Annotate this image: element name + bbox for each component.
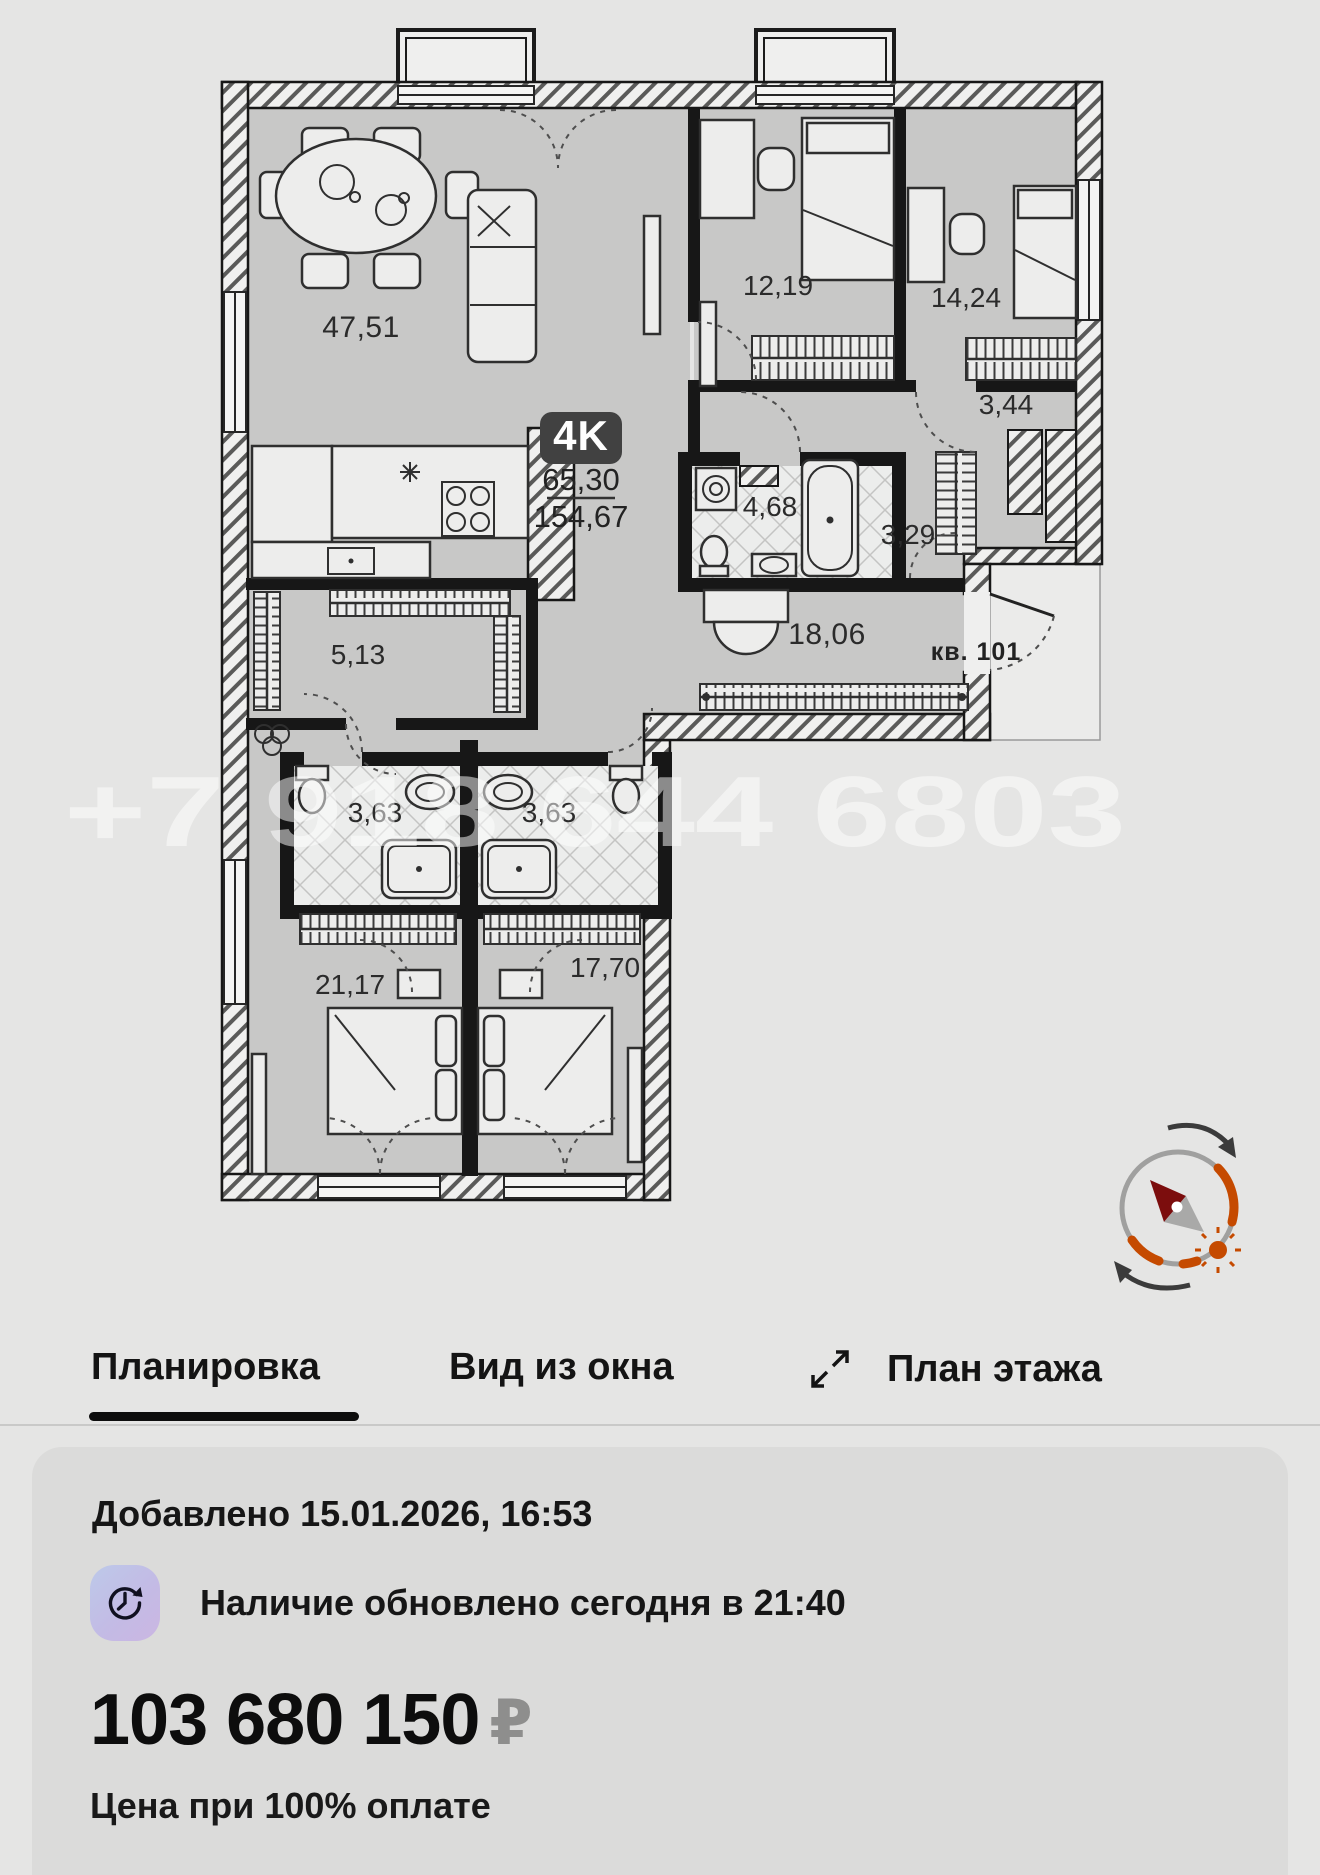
type-badge-text: 4K [553,412,609,459]
total-area-text: 154,67 [534,499,629,534]
watermark-phone: +7 918 644 6803 [64,756,1126,868]
availability-clock-icon [90,1565,160,1641]
room-area-bedroom-2: 14,24 [931,282,1001,313]
room-area-bedroom-3: 21,17 [315,969,385,1000]
room-area-bathroom: 4,68 [743,491,798,522]
currency-ruble-sign: ₽ [489,1686,531,1759]
room-area-hallway: 18,06 [788,618,866,651]
floor-plan-viewer[interactable]: 47,51 12,19 14,24 3,44 4,68 3,29 18,06 5… [0,0,1320,1340]
room-area-corridor: 3,29 [881,519,936,550]
offer-card: Добавлено 15.01.2026, 16:53 Наличие обно… [32,1447,1288,1875]
tab-plan-etazha-label: План этажа [887,1348,1102,1391]
apartment-screen: 47,51 12,19 14,24 3,44 4,68 3,29 18,06 5… [0,0,1320,1875]
window-bays [398,30,894,84]
apartment-type-badge: 4K 65,30 154,67 [534,412,629,534]
room-area-bedroom-1: 12,19 [743,270,813,301]
tab-planirovka-label: Планировка [91,1346,320,1389]
compass-sun-icon [1114,1125,1241,1288]
room-area-closet: 3,44 [979,389,1034,420]
tab-plan-etazha[interactable]: План этажа [807,1346,1102,1392]
price-value: 103 680 150 [90,1680,479,1760]
section-divider [0,1424,1320,1426]
room-area-bedroom-4: 17,70 [570,952,640,983]
floor-plan-image: 47,51 12,19 14,24 3,44 4,68 3,29 18,06 5… [0,0,1320,1340]
availability-text: Наличие обновлено сегодня в 21:40 [200,1582,846,1624]
tab-vid-iz-okna-label: Вид из окна [449,1346,674,1389]
living-area-text: 65,30 [542,462,620,497]
price-line: 103 680 150₽ [90,1679,532,1761]
tab-vid-iz-okna[interactable]: Вид из окна [449,1346,674,1389]
room-area-pantry: 5,13 [331,639,386,670]
active-tab-underline [89,1412,359,1421]
tab-planirovka[interactable]: Планировка [91,1346,320,1389]
expand-icon [807,1346,853,1392]
room-area-living: 47,51 [322,311,400,344]
plan-tabs: Планировка Вид из окна План этажа [0,1346,1320,1412]
price-note: Цена при 100% оплате [90,1785,491,1827]
apartment-number-label: кв. 101 [931,638,1021,666]
availability-row: Наличие обновлено сегодня в 21:40 [90,1565,846,1641]
added-date-text: Добавлено 15.01.2026, 16:53 [92,1493,592,1535]
